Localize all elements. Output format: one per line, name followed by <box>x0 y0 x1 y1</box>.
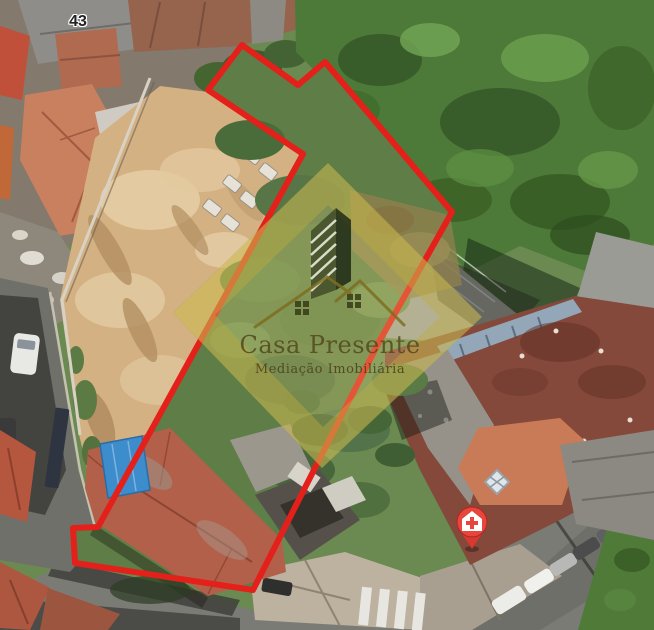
logo-tower-icon <box>336 208 351 290</box>
aerial-photo: 43 Casa Presente Mediação Imobiliária <box>0 0 654 630</box>
watermark-tagline-text: Mediação Imobiliária <box>195 362 465 377</box>
satellite-image <box>0 0 654 630</box>
watermark-brand-text: Casa Presente <box>165 331 495 359</box>
street-number-label: 43 <box>58 13 98 31</box>
